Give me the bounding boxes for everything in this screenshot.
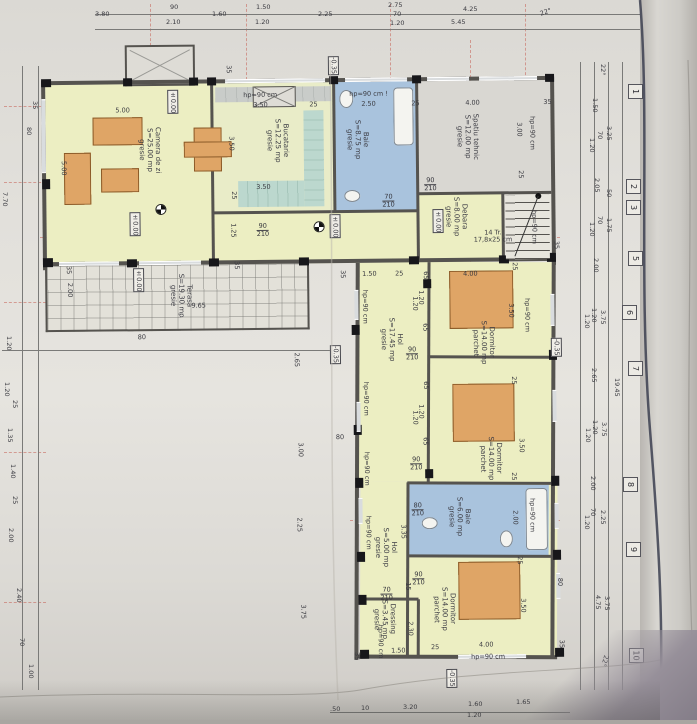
fold-shadow (0, 680, 660, 720)
page-edge-curve (0, 0, 697, 720)
photographed-floor-plan: Camera de ziS=25.00 mpgresie BucatarieS=… (0, 0, 697, 720)
